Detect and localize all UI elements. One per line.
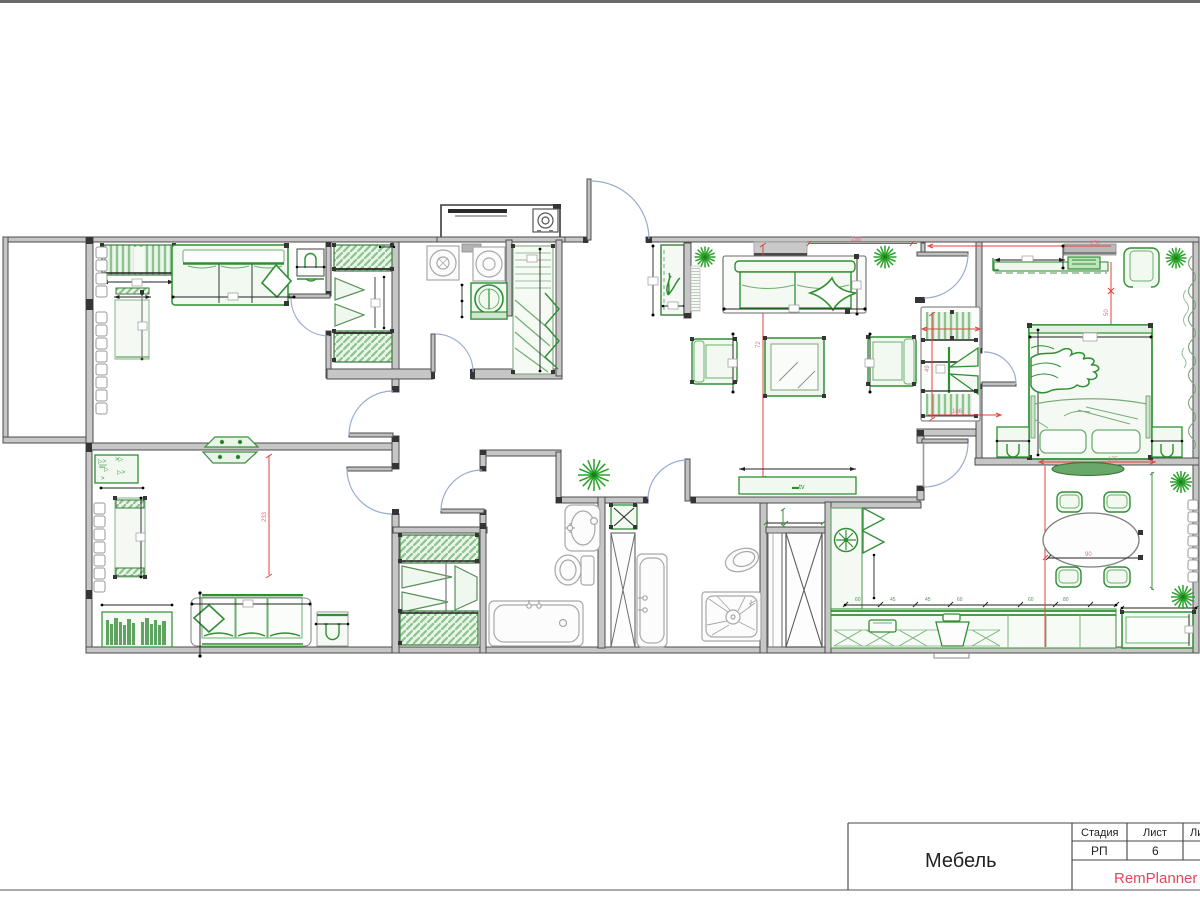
svg-text:60: 60 — [1028, 597, 1034, 603]
svg-text:158: 158 — [851, 237, 862, 243]
svg-text:90: 90 — [1085, 552, 1092, 558]
svg-text:175: 175 — [1108, 457, 1119, 463]
svg-text:▷˃: ▷˃ — [98, 459, 107, 465]
svg-text:60: 60 — [957, 597, 963, 603]
svg-text:80: 80 — [1063, 597, 1069, 603]
svg-text:6: 6 — [1152, 844, 1159, 858]
svg-text:Стадия: Стадия — [1081, 827, 1119, 839]
svg-text:50: 50 — [1104, 309, 1110, 316]
svg-text:Мебель: Мебель — [925, 850, 997, 872]
svg-text:45: 45 — [890, 597, 896, 603]
svg-text:Ли: Ли — [1190, 827, 1200, 839]
svg-text:RemPlanner: RemPlanner — [1114, 870, 1197, 887]
svg-text:49: 49 — [925, 365, 931, 372]
svg-text:РП: РП — [1091, 844, 1108, 858]
svg-text:45: 45 — [925, 597, 931, 603]
svg-text:250: 250 — [1090, 241, 1101, 247]
svg-text:Лист: Лист — [1143, 827, 1167, 839]
svg-text:166: 166 — [952, 409, 963, 415]
svg-text:˃: ˃ — [101, 476, 105, 482]
svg-text:60: 60 — [855, 597, 861, 603]
svg-text:233: 233 — [262, 511, 268, 522]
svg-text:˃▷: ˃▷ — [115, 457, 124, 463]
svg-text:▬tv: ▬tv — [792, 484, 805, 491]
svg-text:72: 72 — [756, 341, 762, 348]
svg-text:▷˃: ▷˃ — [117, 470, 126, 476]
